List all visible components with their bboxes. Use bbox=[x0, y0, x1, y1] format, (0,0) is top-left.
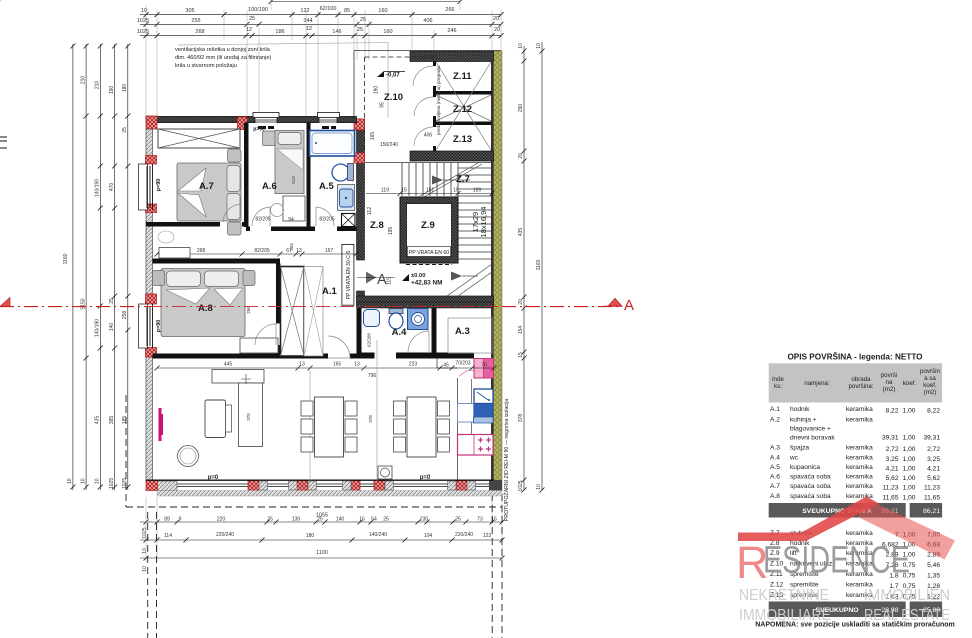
svg-text:ESIDENCE: ESIDENCE bbox=[763, 540, 910, 582]
svg-text:A.3: A.3 bbox=[770, 445, 780, 452]
svg-text:435: 435 bbox=[518, 228, 524, 237]
svg-text:10: 10 bbox=[67, 478, 73, 484]
svg-text:1025: 1025 bbox=[142, 527, 148, 538]
svg-text:8,22: 8,22 bbox=[886, 408, 899, 415]
svg-text:obrada: obrada bbox=[851, 376, 871, 383]
svg-text:86,21: 86,21 bbox=[923, 508, 940, 515]
svg-text:keramika: keramika bbox=[846, 445, 873, 452]
svg-text:3,25: 3,25 bbox=[886, 456, 899, 463]
svg-text:25: 25 bbox=[249, 16, 255, 22]
svg-text:keramika: keramika bbox=[846, 474, 873, 481]
svg-text:±0.00: ±0.00 bbox=[411, 273, 425, 279]
svg-text:5,62: 5,62 bbox=[886, 475, 899, 482]
svg-text:Z.9: Z.9 bbox=[421, 220, 435, 231]
svg-text:A.1: A.1 bbox=[770, 406, 780, 413]
svg-text:513: 513 bbox=[291, 176, 296, 184]
svg-text:ks:: ks: bbox=[774, 383, 782, 390]
svg-text:210: 210 bbox=[95, 81, 101, 90]
svg-text:8,22: 8,22 bbox=[927, 408, 940, 415]
svg-text:160: 160 bbox=[383, 29, 392, 35]
svg-text:keramika: keramika bbox=[846, 483, 873, 490]
svg-text:140/190: 140/190 bbox=[95, 319, 101, 337]
svg-text:140/190: 140/190 bbox=[95, 179, 101, 197]
svg-text:1025: 1025 bbox=[137, 18, 149, 24]
svg-text:18x16,94: 18x16,94 bbox=[479, 207, 488, 238]
svg-text:A.5: A.5 bbox=[319, 181, 335, 192]
svg-text:p=0: p=0 bbox=[420, 475, 431, 481]
svg-text:62/100: 62/100 bbox=[320, 6, 337, 12]
svg-text:1,00: 1,00 bbox=[903, 435, 916, 442]
svg-text:namjena:: namjena: bbox=[804, 380, 830, 387]
svg-text:378: 378 bbox=[518, 414, 524, 423]
svg-text:kuhinja +: kuhinja + bbox=[790, 417, 817, 424]
svg-text:11,23: 11,23 bbox=[924, 485, 940, 492]
svg-text:20: 20 bbox=[493, 16, 499, 22]
svg-text:114: 114 bbox=[164, 533, 172, 539]
svg-text:1,00: 1,00 bbox=[903, 446, 916, 453]
svg-text:54: 54 bbox=[371, 517, 377, 523]
svg-text:spavaća soba: spavaća soba bbox=[790, 493, 831, 500]
svg-text:20: 20 bbox=[494, 27, 500, 33]
svg-text:25: 25 bbox=[109, 298, 115, 304]
svg-text:12: 12 bbox=[306, 26, 312, 32]
svg-text:1,00: 1,00 bbox=[903, 408, 916, 415]
svg-text:25: 25 bbox=[122, 127, 128, 133]
svg-text:195: 195 bbox=[388, 227, 394, 236]
svg-text:406: 406 bbox=[423, 18, 432, 24]
svg-text:keramika: keramika bbox=[846, 417, 873, 424]
svg-text:dnevni boravak: dnevni boravak bbox=[790, 435, 835, 442]
svg-text:10: 10 bbox=[536, 484, 542, 490]
svg-text:Z.11: Z.11 bbox=[453, 71, 472, 82]
svg-text:spavaća soba: spavaća soba bbox=[790, 474, 831, 481]
svg-text:115: 115 bbox=[387, 277, 393, 285]
svg-text:OPIS POVRŠINA - legenda: NETTO: OPIS POVRŠINA - legenda: NETTO bbox=[787, 351, 923, 362]
svg-text:15: 15 bbox=[359, 517, 365, 523]
svg-text:112: 112 bbox=[367, 207, 373, 215]
svg-text:180: 180 bbox=[306, 533, 315, 539]
svg-text:62/208: 62/208 bbox=[367, 333, 372, 347]
svg-text:11,23: 11,23 bbox=[882, 485, 898, 492]
svg-text:223: 223 bbox=[409, 362, 418, 368]
svg-text:89: 89 bbox=[164, 517, 170, 523]
svg-text:površin: površin bbox=[920, 368, 941, 375]
svg-text:predgotovljena (metalna) pregr: predgotovljena (metalna) pregrada bbox=[436, 65, 441, 135]
svg-text:keramika: keramika bbox=[846, 530, 873, 537]
svg-text:15: 15 bbox=[518, 352, 524, 358]
svg-text:230: 230 bbox=[420, 517, 429, 523]
svg-text:796: 796 bbox=[368, 373, 377, 379]
svg-text:1,35: 1,35 bbox=[927, 573, 940, 580]
svg-text:površi: površi bbox=[881, 372, 898, 379]
svg-text:A.7: A.7 bbox=[199, 181, 214, 192]
svg-text:PP VRATA EN 60: PP VRATA EN 60 bbox=[409, 250, 449, 256]
svg-text:165: 165 bbox=[370, 132, 376, 141]
svg-text:A: A bbox=[624, 297, 634, 314]
svg-text:4,21: 4,21 bbox=[927, 466, 940, 473]
svg-text:82/205: 82/205 bbox=[319, 217, 335, 223]
svg-text:82/205: 82/205 bbox=[255, 217, 271, 223]
svg-text:385: 385 bbox=[109, 416, 115, 425]
svg-text:1160: 1160 bbox=[536, 259, 542, 270]
svg-text:p=0: p=0 bbox=[208, 475, 219, 481]
svg-text:15: 15 bbox=[401, 188, 407, 194]
svg-text:PROTUPOŽARNI ZID REI-M 90 — ne: PROTUPOŽARNI ZID REI-M 90 — negoriva izo… bbox=[502, 399, 510, 521]
svg-text:1,00: 1,00 bbox=[903, 475, 916, 482]
svg-text:1,00: 1,00 bbox=[903, 495, 916, 502]
svg-text:154: 154 bbox=[518, 326, 524, 335]
svg-text:IMMOBILIEN: IMMOBILIEN bbox=[864, 587, 950, 604]
svg-text:Z.7: Z.7 bbox=[456, 174, 470, 185]
svg-text:122: 122 bbox=[300, 8, 309, 14]
svg-text:130: 130 bbox=[292, 517, 301, 523]
svg-text:ventilacijska rešetka u donjoj: ventilacijska rešetka u donjoj zoni kril… bbox=[175, 47, 271, 53]
svg-text:2,72: 2,72 bbox=[927, 446, 940, 453]
svg-text:266: 266 bbox=[445, 7, 454, 13]
svg-text:189: 189 bbox=[473, 188, 482, 194]
svg-text:1025: 1025 bbox=[109, 478, 115, 489]
svg-text:378: 378 bbox=[368, 415, 373, 423]
svg-text:39,31: 39,31 bbox=[882, 435, 899, 442]
svg-text:A.4: A.4 bbox=[770, 455, 780, 462]
svg-text:146: 146 bbox=[332, 29, 341, 35]
svg-text:180: 180 bbox=[122, 84, 128, 93]
svg-text:25: 25 bbox=[267, 517, 273, 523]
svg-text:94: 94 bbox=[288, 217, 294, 223]
svg-text:spavaća soba: spavaća soba bbox=[790, 483, 831, 490]
svg-text:4,21: 4,21 bbox=[886, 466, 899, 473]
svg-text:IMMOBILIARE: IMMOBILIARE bbox=[739, 607, 831, 624]
svg-text:A: A bbox=[377, 272, 387, 288]
svg-text:Z.10: Z.10 bbox=[384, 92, 403, 103]
svg-text:5,46: 5,46 bbox=[927, 562, 940, 569]
svg-text:Z.8: Z.8 bbox=[370, 220, 384, 231]
svg-text:445: 445 bbox=[224, 362, 233, 368]
svg-text:1025: 1025 bbox=[137, 29, 149, 35]
svg-text:25: 25 bbox=[357, 27, 363, 33]
svg-text:wc: wc bbox=[789, 455, 799, 462]
svg-text:A.8: A.8 bbox=[198, 303, 213, 314]
svg-text:A.1: A.1 bbox=[322, 286, 338, 297]
svg-text:keramika: keramika bbox=[846, 406, 873, 413]
svg-text:39,31: 39,31 bbox=[923, 435, 940, 442]
svg-text:73: 73 bbox=[477, 517, 483, 523]
svg-text:140/240: 140/240 bbox=[369, 532, 387, 538]
svg-text:2,72: 2,72 bbox=[886, 446, 899, 453]
svg-text:REAL ESTATE: REAL ESTATE bbox=[864, 607, 950, 624]
svg-text:119: 119 bbox=[381, 188, 389, 194]
svg-text:70: 70 bbox=[481, 363, 487, 369]
svg-text:186: 186 bbox=[275, 29, 284, 35]
svg-text:220/240: 220/240 bbox=[455, 532, 473, 538]
svg-text:185: 185 bbox=[122, 416, 128, 425]
svg-text:kupaonica: kupaonica bbox=[790, 464, 820, 471]
svg-text:1025: 1025 bbox=[518, 480, 524, 491]
svg-text:A.6: A.6 bbox=[262, 181, 277, 192]
svg-text:-0,07: -0,07 bbox=[386, 73, 400, 79]
svg-text:25: 25 bbox=[383, 517, 389, 523]
svg-text:246: 246 bbox=[447, 28, 456, 34]
svg-text:435: 435 bbox=[95, 416, 101, 425]
svg-text:1,00: 1,00 bbox=[903, 485, 916, 492]
svg-text:20: 20 bbox=[518, 153, 524, 159]
svg-text:140: 140 bbox=[109, 323, 115, 332]
svg-text:A.2: A.2 bbox=[770, 417, 780, 424]
svg-text:305: 305 bbox=[185, 8, 194, 14]
svg-text:268: 268 bbox=[197, 248, 206, 254]
svg-text:160: 160 bbox=[378, 8, 387, 14]
svg-text:10: 10 bbox=[81, 478, 87, 484]
svg-text:13: 13 bbox=[296, 248, 302, 254]
svg-text:p=90: p=90 bbox=[156, 179, 162, 192]
svg-text:123: 123 bbox=[483, 533, 492, 539]
svg-text:špajza: špajza bbox=[790, 445, 809, 452]
svg-text:na: na bbox=[886, 379, 893, 386]
svg-text:A.3: A.3 bbox=[455, 326, 470, 337]
svg-text:A.5: A.5 bbox=[770, 464, 780, 471]
svg-text:+42,83 NM: +42,83 NM bbox=[411, 280, 442, 287]
svg-text:255: 255 bbox=[191, 18, 200, 24]
svg-text:1100: 1100 bbox=[316, 550, 328, 556]
svg-text:165: 165 bbox=[333, 362, 342, 368]
svg-text:a sa: a sa bbox=[924, 375, 936, 382]
svg-text:dim. 460/92 mm (ili uređaj za: dim. 460/92 mm (ili uređaj za filtriranj… bbox=[175, 55, 272, 61]
svg-text:167: 167 bbox=[325, 248, 334, 254]
svg-text:378: 378 bbox=[246, 413, 251, 421]
svg-text:A.8: A.8 bbox=[770, 493, 780, 500]
svg-text:A.6: A.6 bbox=[770, 474, 780, 481]
svg-text:10: 10 bbox=[142, 548, 148, 554]
svg-text:(m2): (m2) bbox=[883, 386, 896, 393]
svg-text:10: 10 bbox=[95, 478, 101, 484]
svg-text:104: 104 bbox=[424, 533, 433, 539]
svg-text:10: 10 bbox=[536, 43, 542, 49]
svg-text:406: 406 bbox=[424, 133, 433, 139]
svg-text:190: 190 bbox=[109, 86, 115, 95]
svg-text:1160: 1160 bbox=[63, 253, 69, 264]
svg-text:150/240: 150/240 bbox=[380, 142, 398, 148]
svg-text:3,25: 3,25 bbox=[927, 456, 940, 463]
svg-text:13: 13 bbox=[299, 362, 305, 368]
svg-text:20: 20 bbox=[518, 299, 524, 305]
svg-text:(m2): (m2) bbox=[924, 389, 937, 396]
svg-text:45: 45 bbox=[443, 363, 449, 369]
svg-text:85: 85 bbox=[344, 8, 350, 14]
svg-text:9: 9 bbox=[179, 517, 182, 523]
svg-text:151: 151 bbox=[426, 188, 435, 194]
svg-text:koef.: koef. bbox=[923, 382, 937, 389]
svg-text:470: 470 bbox=[109, 183, 115, 192]
svg-text:10: 10 bbox=[142, 566, 148, 572]
svg-text:5150: 5150 bbox=[81, 298, 87, 309]
svg-text:220: 220 bbox=[217, 517, 226, 523]
svg-text:1,00: 1,00 bbox=[903, 466, 916, 473]
svg-text:190: 190 bbox=[374, 86, 380, 95]
svg-text:A.7: A.7 bbox=[770, 483, 780, 490]
svg-text:površina:: površina: bbox=[848, 383, 873, 390]
svg-text:Z.12: Z.12 bbox=[453, 104, 472, 115]
svg-text:13: 13 bbox=[354, 362, 360, 368]
svg-text:268: 268 bbox=[195, 29, 204, 35]
svg-text:1,00: 1,00 bbox=[903, 456, 916, 463]
svg-text:104: 104 bbox=[289, 243, 294, 251]
svg-text:koef.: koef. bbox=[903, 380, 917, 387]
svg-text:11,65: 11,65 bbox=[882, 495, 898, 502]
svg-text:inde: inde bbox=[772, 376, 784, 383]
svg-text:344: 344 bbox=[303, 18, 312, 24]
svg-text:NEKRETNINE: NEKRETNINE bbox=[739, 587, 829, 604]
svg-text:blagovanice +: blagovanice + bbox=[790, 426, 831, 433]
svg-text:A.4: A.4 bbox=[392, 327, 408, 338]
svg-text:PP VRATA EN 30-C-5: PP VRATA EN 30-C-5 bbox=[346, 250, 352, 299]
svg-text:82/205: 82/205 bbox=[254, 248, 270, 254]
svg-text:keramika: keramika bbox=[846, 455, 873, 462]
svg-text:hodnik: hodnik bbox=[790, 406, 810, 413]
svg-text:15: 15 bbox=[453, 188, 459, 194]
svg-text:25: 25 bbox=[455, 517, 461, 523]
svg-text:1025: 1025 bbox=[122, 478, 128, 489]
svg-text:220/240: 220/240 bbox=[216, 532, 234, 538]
svg-text:11,65: 11,65 bbox=[924, 495, 940, 502]
svg-text:10: 10 bbox=[518, 43, 524, 49]
svg-text:keramika: keramika bbox=[846, 464, 873, 471]
svg-text:25: 25 bbox=[317, 517, 323, 523]
svg-text:258: 258 bbox=[122, 311, 128, 320]
svg-text:Z.13: Z.13 bbox=[453, 134, 472, 145]
svg-text:70/203: 70/203 bbox=[455, 361, 471, 367]
svg-text:210: 210 bbox=[81, 76, 87, 85]
svg-text:140: 140 bbox=[336, 517, 345, 523]
svg-text:290: 290 bbox=[518, 104, 524, 113]
svg-text:krila u stvarnom položaju: krila u stvarnom položaju bbox=[175, 63, 237, 69]
svg-text:5,62: 5,62 bbox=[927, 475, 940, 482]
svg-text:100/190: 100/190 bbox=[248, 7, 268, 13]
